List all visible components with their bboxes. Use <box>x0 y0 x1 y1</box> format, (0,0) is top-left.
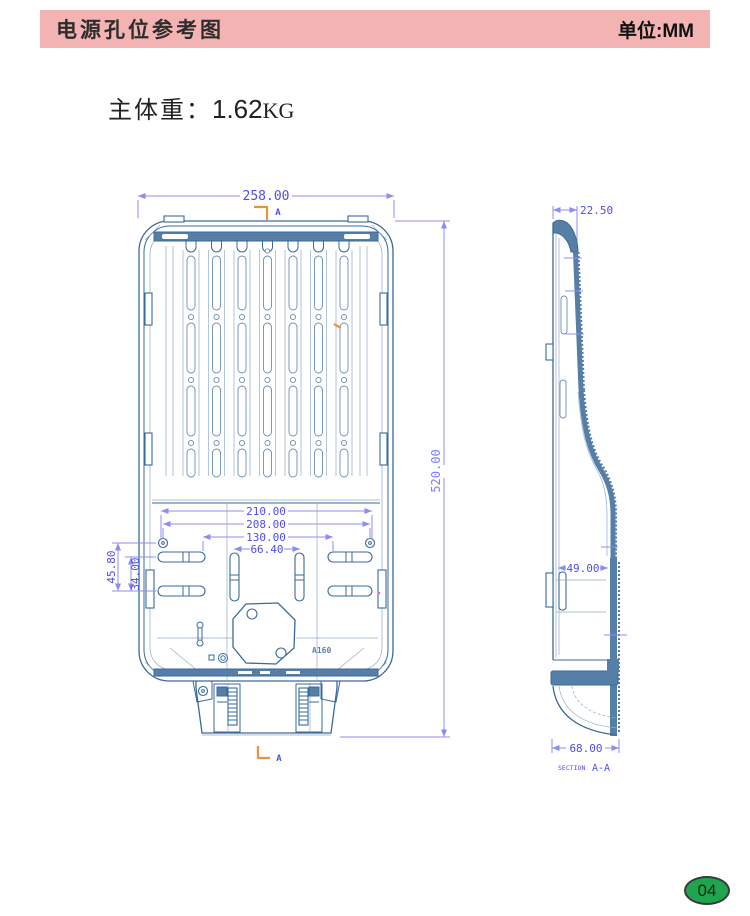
profile-cap <box>553 220 578 252</box>
dim-258-label: 258.00 <box>243 189 290 204</box>
dim-49: 49.00 <box>558 562 608 575</box>
section-cut-mark-top <box>254 207 267 220</box>
dim-210-label: 210.00 <box>246 505 286 518</box>
section-caption-word: SECTION <box>558 764 585 772</box>
dim-68: 68.00 <box>552 739 619 755</box>
section-letter-bottom: A <box>276 754 282 764</box>
pole-bracket <box>154 669 378 735</box>
dim-66-label: 66.40 <box>250 543 283 556</box>
section-cut-mark-bottom <box>258 746 270 758</box>
dim-22-label: 22.50 <box>580 204 613 217</box>
dim-45-label: 45.80 <box>105 550 118 583</box>
page-number: 04 <box>698 881 717 901</box>
dim-49-label: 49.00 <box>566 562 599 575</box>
heatsink-fins <box>166 240 367 477</box>
dim-34-label: 34.00 <box>129 557 142 590</box>
side-view: 22.50 <box>546 204 627 774</box>
bottom-clamp <box>551 671 618 685</box>
drawing-page: 电源孔位参考图 单位:MM 主体重：1.62KG <box>0 0 750 916</box>
part-label: A160 <box>312 646 331 655</box>
page-number-badge: 04 <box>684 876 730 905</box>
technical-drawing: 258.00 A 520.00 210.00 <box>0 0 750 820</box>
dim-208-label: 208.00 <box>246 518 286 531</box>
dim-68-label: 68.00 <box>569 742 602 755</box>
front-view: 258.00 A 520.00 210.00 <box>105 189 450 764</box>
dim-66: 66.40 <box>234 543 300 556</box>
dim-height-520: 520.00 <box>340 221 450 737</box>
section-letter-top: A <box>275 208 281 218</box>
dim-520-label: 520.00 <box>429 449 443 492</box>
section-caption-name: A-A <box>592 763 610 774</box>
